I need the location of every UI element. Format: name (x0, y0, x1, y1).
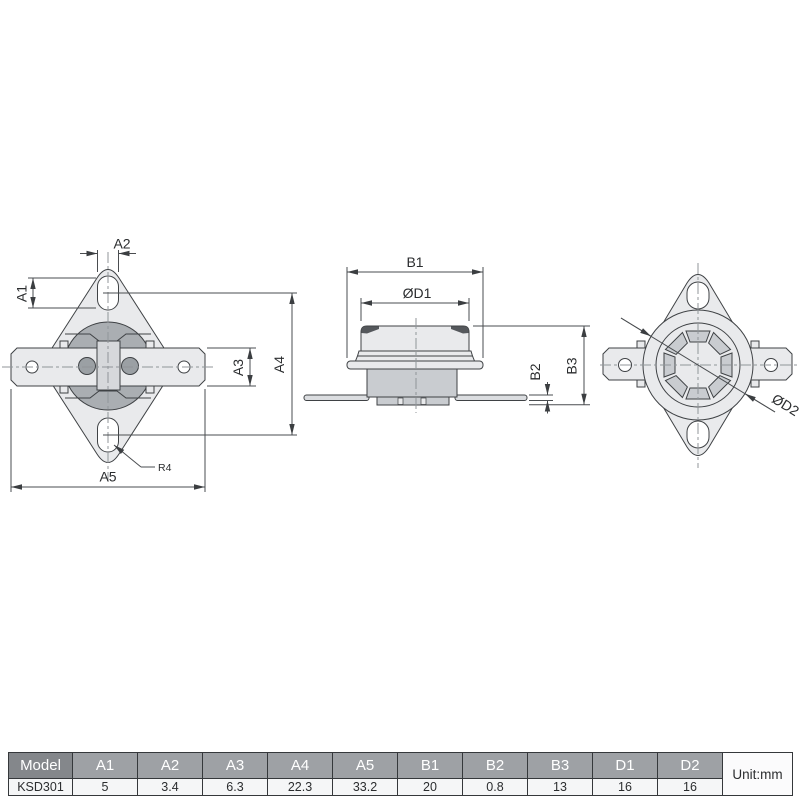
front-tab (60, 386, 68, 393)
header-b1: B1 (398, 753, 463, 779)
cell-model: KSD301 (9, 779, 73, 796)
dim-label-a5: A5 (99, 469, 116, 485)
back-tab (637, 341, 645, 348)
front-tab (146, 386, 154, 393)
leader-r4: R4 (114, 445, 172, 474)
dim-label-d1: ØD1 (403, 285, 432, 301)
technical-drawing: A2 A1 A3 A4 A5 (0, 0, 800, 800)
dim-label-a2: A2 (113, 236, 130, 252)
cell-d1: 16 (593, 779, 658, 796)
table-header-row: Model A1 A2 A3 A4 A5 B1 B2 B3 D1 D2 Unit… (9, 753, 793, 779)
dimension-b2: B2 (527, 363, 553, 413)
side-cap-rim-lower (356, 356, 475, 361)
cell-a4: 22.3 (268, 779, 333, 796)
cell-b1: 20 (398, 779, 463, 796)
cell-d2: 16 (658, 779, 723, 796)
dim-label-b3: B3 (564, 357, 580, 374)
header-b3: B3 (528, 753, 593, 779)
header-a4: A4 (268, 753, 333, 779)
cell-b3: 13 (528, 779, 593, 796)
cell-a1: 5 (73, 779, 138, 796)
header-a3: A3 (203, 753, 268, 779)
side-view: B1 ØD1 B3 B2 (304, 254, 590, 414)
cell-a2: 3.4 (138, 779, 203, 796)
header-d1: D1 (593, 753, 658, 779)
side-body (367, 369, 457, 397)
side-base-notch (398, 398, 403, 405)
table-data-row: KSD301 5 3.4 6.3 22.3 33.2 20 0.8 13 16 … (9, 779, 793, 796)
header-d2: D2 (658, 753, 723, 779)
dim-label-a4: A4 (271, 356, 287, 373)
cell-a3: 6.3 (203, 779, 268, 796)
side-cap (361, 326, 469, 351)
header-a2: A2 (138, 753, 203, 779)
back-tab (751, 380, 759, 387)
side-cap-rim-upper (358, 351, 473, 356)
front-rivet-left (79, 358, 96, 375)
side-terminal-right (455, 395, 527, 401)
dimension-d1: ØD1 (361, 285, 469, 321)
cell-a5: 33.2 (333, 779, 398, 796)
front-view: A2 A1 A3 A4 A5 (2, 236, 297, 493)
header-a1: A1 (73, 753, 138, 779)
front-tab (60, 341, 68, 348)
front-rivet-right (122, 358, 139, 375)
side-flange-plate (347, 361, 483, 369)
dim-label-d2: ØD2 (769, 390, 800, 419)
header-a5: A5 (333, 753, 398, 779)
dimension-table: Model A1 A2 A3 A4 A5 B1 B2 B3 D1 D2 Unit… (8, 752, 793, 796)
side-base-block (377, 397, 449, 405)
cell-b2: 0.8 (463, 779, 528, 796)
side-base-notch (421, 398, 426, 405)
back-tab (751, 341, 759, 348)
dim-label-r4: R4 (158, 462, 172, 474)
drawing-canvas: A2 A1 A3 A4 A5 (0, 0, 800, 800)
back-view: ØD2 (600, 263, 800, 468)
dim-label-b1: B1 (406, 254, 423, 270)
back-tab (637, 380, 645, 387)
dim-label-a3: A3 (230, 359, 246, 376)
unit-note: Unit:mm (723, 753, 793, 796)
side-terminal-left (304, 395, 369, 401)
front-tab (146, 341, 154, 348)
dimension-a3: A3 (207, 348, 256, 386)
header-model: Model (9, 753, 73, 779)
header-b2: B2 (463, 753, 528, 779)
dim-label-b2: B2 (527, 363, 543, 380)
dim-label-a1: A1 (14, 285, 30, 302)
